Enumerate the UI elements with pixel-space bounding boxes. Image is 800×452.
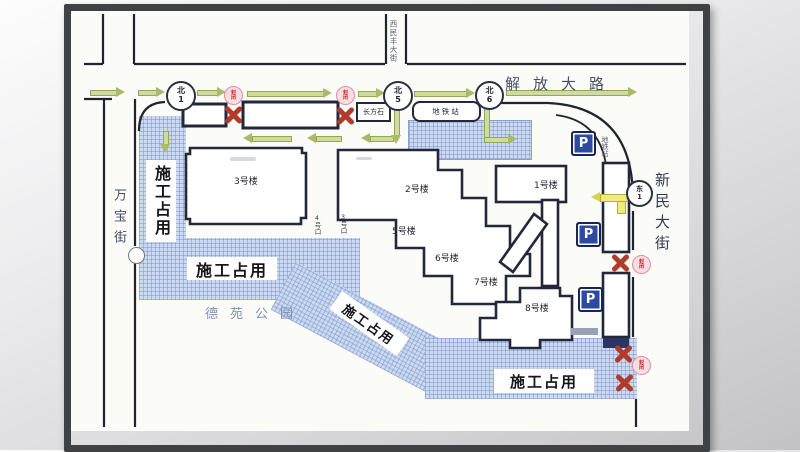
- closed-badge-char: 闭: [231, 96, 236, 101]
- parking-lot-strip-south: [603, 273, 629, 337]
- building-3-label: 3号楼: [234, 174, 258, 187]
- building-2-label: 2号楼: [405, 182, 429, 195]
- arrow-down-head-icon: [391, 135, 401, 144]
- arrow-east-icon: [197, 90, 219, 96]
- subway-station-box: 地铁站: [412, 101, 481, 122]
- arrow-west-icon: [252, 136, 292, 142]
- parking-icon: P: [576, 222, 601, 247]
- gate-north-6-num: 6: [487, 96, 493, 105]
- gate-east-1: 东1: [626, 180, 653, 207]
- arrow-down-icon: [394, 108, 400, 136]
- closed-badge: 封闭: [336, 86, 355, 105]
- closed-x-icon: [223, 105, 243, 125]
- arrow-east-icon: [138, 90, 158, 96]
- closed-badge-char: 闭: [639, 265, 644, 270]
- arrow-east-icon: [247, 91, 325, 97]
- arrow-yellow-west-head-icon: [591, 192, 600, 202]
- gate-east-1-num: 1: [637, 194, 642, 202]
- gate-north-5: 北5: [383, 81, 413, 111]
- arrow-down-icon: [163, 131, 169, 145]
- closed-badge: 封闭: [632, 255, 651, 274]
- arrow-west-icon: [316, 136, 342, 142]
- arrow-east-head-icon: [628, 87, 637, 97]
- gray-structure-bar: [571, 328, 598, 335]
- west-gate-circle: [128, 247, 145, 264]
- street-label-wanbao: 万宝街: [109, 188, 128, 251]
- arrow-right-head-icon: [508, 134, 517, 144]
- building-8-label: 8号楼: [525, 301, 549, 314]
- arrow-east-head-icon: [323, 88, 332, 98]
- gate-north-6: 北6: [475, 81, 504, 110]
- gate-north-1: 北1: [166, 81, 196, 111]
- construction-label-west: 施工占用: [146, 160, 176, 242]
- arrow-west-head-icon: [243, 133, 252, 143]
- arrow-east-icon: [358, 91, 378, 97]
- gate-north-5-num: 5: [395, 96, 401, 105]
- closed-badge: 封闭: [224, 86, 243, 105]
- arrow-yellow-stub: [617, 200, 626, 214]
- building-6-label: 6号楼: [435, 251, 459, 264]
- closed-x-icon: [335, 106, 355, 126]
- street-label-xinmin: 新民大街: [652, 172, 673, 256]
- closed-x-icon: [613, 344, 633, 364]
- arrow-west-head-icon: [361, 133, 370, 143]
- arrow-east-head-icon: [466, 88, 475, 98]
- illegible-text: [356, 157, 372, 160]
- arrow-east-icon: [90, 90, 118, 96]
- arrow-east-icon: [414, 91, 468, 97]
- street-label-ximinfeng: 西民丰大街: [388, 20, 399, 63]
- roadside-structure-2: [243, 102, 338, 128]
- building-7-label: 7号楼: [474, 275, 498, 288]
- subway-exit-4-label: 4号口: [312, 214, 322, 235]
- arrow-east-head-icon: [156, 87, 165, 97]
- street-label-jiefang: 解放大路: [505, 73, 617, 94]
- arrow-right-icon: [484, 137, 510, 143]
- subway-exit-3-label: 3号口: [338, 213, 348, 234]
- closed-badge: 封闭: [632, 356, 651, 375]
- building-1-label: 1号楼: [534, 178, 558, 191]
- closed-x-icon: [610, 253, 630, 273]
- illegible-text: [230, 157, 256, 161]
- arrow-west-head-icon: [307, 133, 316, 143]
- subway-lane-label: 地铁站: [600, 136, 610, 157]
- arrow-down-head-icon: [160, 144, 170, 153]
- building-5-label: 5号楼: [392, 224, 416, 237]
- arrow-yellow-west-icon: [600, 194, 628, 202]
- closed-badge-char: 闭: [343, 96, 348, 101]
- parking-icon: P: [578, 287, 603, 312]
- arrow-east-head-icon: [116, 87, 125, 97]
- building-1-wing: [542, 200, 558, 286]
- closed-badge-char: 闭: [639, 366, 644, 371]
- gate-north-1-num: 1: [178, 96, 184, 105]
- construction-label-southeast: 施工占用: [494, 369, 594, 393]
- construction-label-southwest: 施工占用: [187, 257, 277, 280]
- closed-x-icon: [614, 373, 634, 393]
- park-label: 德苑公园: [205, 303, 305, 322]
- parking-icon: P: [571, 131, 596, 156]
